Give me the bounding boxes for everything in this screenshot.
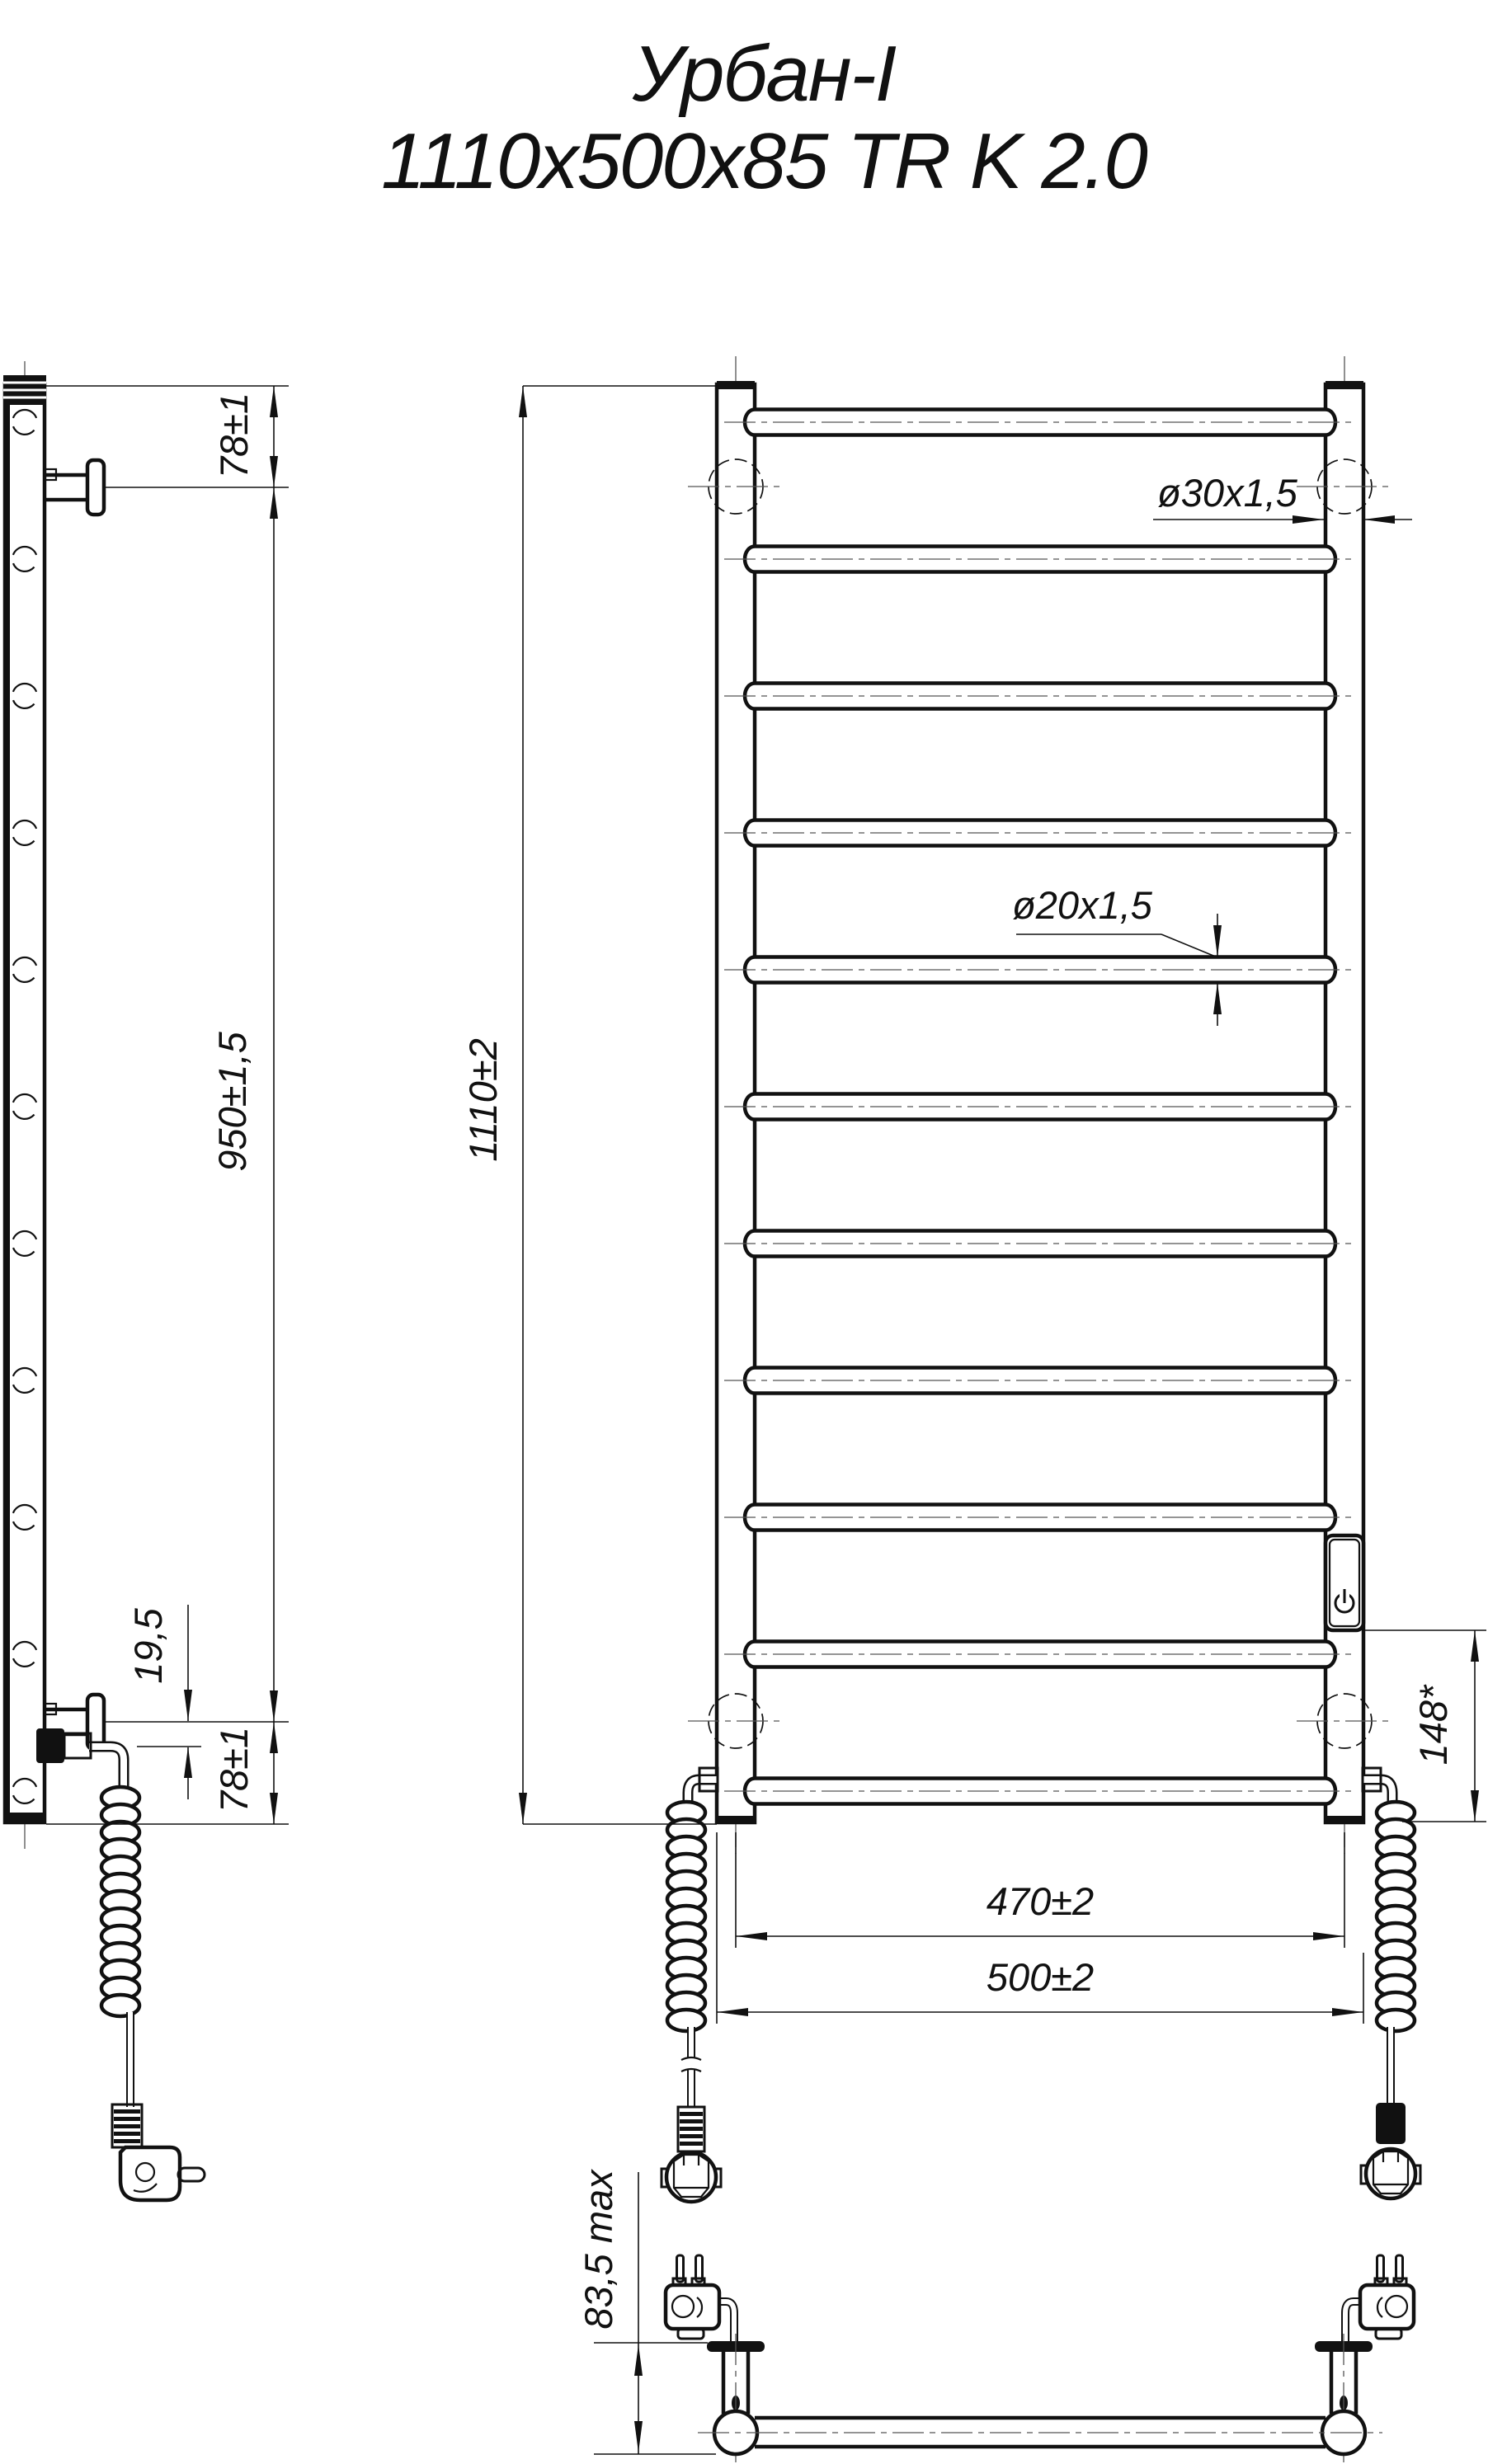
title-block: Урбан-I 1110x500x85 TR K 2.0	[381, 30, 1147, 205]
dim-side-cable-offset: 19,5	[126, 1607, 170, 1683]
left-rail-bottom-cap	[717, 1816, 755, 1824]
dim-rung-tube: ø20x1,5	[1012, 883, 1153, 927]
left-rail-top-cap	[717, 381, 755, 389]
side-profile-bar	[5, 384, 45, 1822]
front-view	[662, 356, 1420, 2202]
dim-rail-tube: ø30x1,5	[1157, 471, 1298, 515]
technical-drawing: Урбан-I 1110x500x85 TR K 2.0	[0, 0, 1488, 2464]
front-right-plug	[1361, 2103, 1420, 2198]
front-left-cord	[662, 1768, 721, 2202]
side-view	[3, 361, 205, 2200]
dim-bracket-centers-width: 470±2	[987, 1879, 1094, 1923]
dim-front-height: 1110±2	[461, 1038, 505, 1162]
model-name: Урбан-I	[632, 30, 897, 118]
side-heating-element	[36, 1728, 124, 1794]
side-dimensions: 78±1 950±1,5 19,5 78±1	[46, 386, 289, 1824]
model-size-code: 1110x500x85 TR K 2.0	[381, 117, 1147, 205]
bottom-view: 83,5 max	[577, 2169, 1414, 2462]
dim-side-top-offset: 78±1	[212, 393, 256, 478]
front-right-cord	[1361, 1768, 1420, 2198]
power-switch	[1326, 1535, 1363, 1630]
right-rail-bottom-cap	[1326, 1816, 1363, 1824]
side-top-cap	[3, 375, 46, 405]
right-rail-top-cap	[1326, 381, 1363, 389]
side-power-cord-coil	[101, 1787, 139, 2016]
side-top-bracket	[45, 460, 104, 515]
drawing-page: Урбан-I 1110x500x85 TR K 2.0	[0, 0, 1488, 2464]
rungs	[724, 410, 1356, 1804]
dim-side-bracket-span: 950±1,5	[210, 1031, 254, 1171]
dim-overall-width: 500±2	[987, 1955, 1094, 1999]
dim-switch-to-bottom: 148*	[1411, 1684, 1455, 1765]
side-plug	[112, 2104, 205, 2200]
side-bottom-cap	[5, 1813, 45, 1824]
front-left-plug	[662, 2107, 721, 2202]
dim-depth-max: 83,5 max	[577, 2169, 620, 2330]
dim-side-bottom-offset: 78±1	[212, 1727, 256, 1813]
